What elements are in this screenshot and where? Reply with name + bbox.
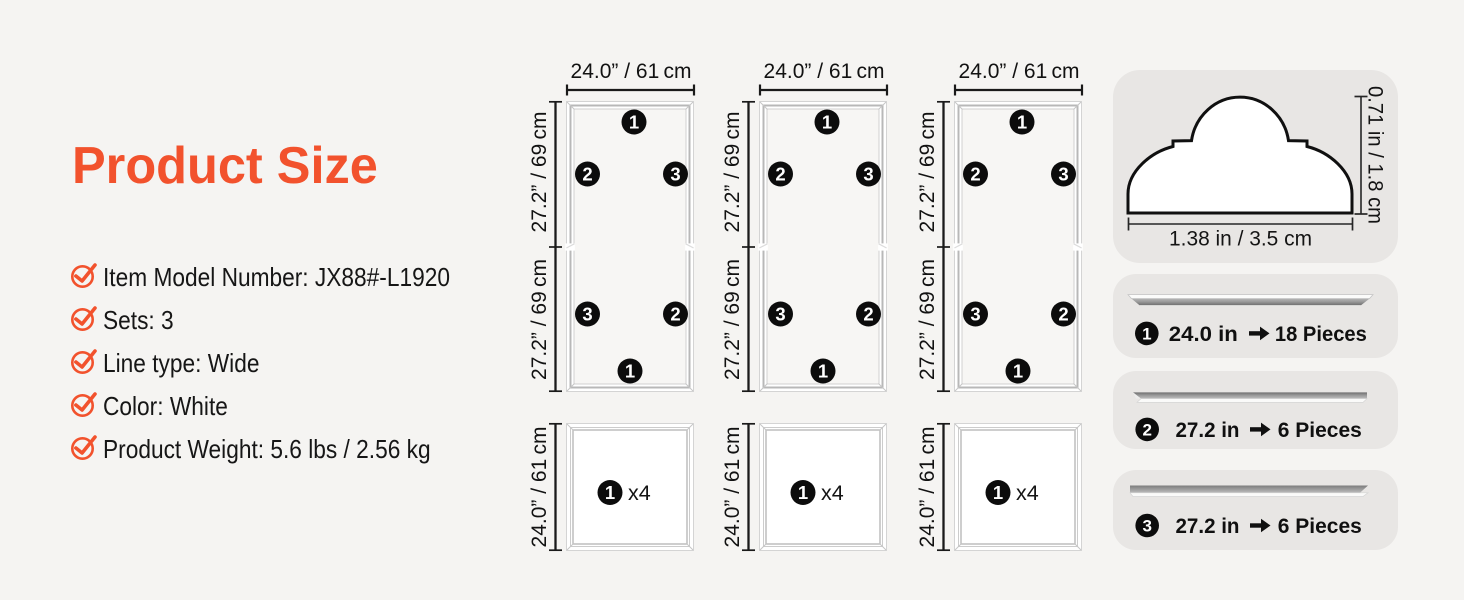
svg-text:24.0 in: 24.0 in [1169, 323, 1238, 346]
svg-text:24.0” / 61 cm: 24.0” / 61 cm [959, 60, 1080, 83]
svg-text:1: 1 [993, 482, 1003, 503]
svg-text:3: 3 [863, 164, 873, 185]
svg-text:1: 1 [798, 482, 808, 503]
svg-text:2: 2 [775, 164, 785, 185]
svg-text:27.2” / 69 cm: 27.2” / 69 cm [721, 112, 744, 233]
svg-text:1: 1 [629, 112, 639, 133]
svg-text:24.0” / 61 cm: 24.0” / 61 cm [916, 427, 939, 548]
svg-text:3: 3 [1142, 517, 1151, 536]
svg-text:24.0” / 61 cm: 24.0” / 61 cm [528, 427, 551, 548]
svg-text:x4: x4 [821, 481, 844, 505]
svg-text:2: 2 [1058, 304, 1068, 325]
svg-text:1: 1 [1013, 361, 1023, 382]
svg-text:1: 1 [818, 361, 828, 382]
svg-text:3: 3 [582, 304, 592, 325]
svg-text:3: 3 [775, 304, 785, 325]
svg-text:27.2” / 69 cm: 27.2” / 69 cm [528, 259, 551, 380]
svg-text:27.2 in: 27.2 in [1176, 419, 1240, 442]
svg-text:1: 1 [1142, 325, 1151, 344]
svg-text:27.2” / 69 cm: 27.2” / 69 cm [916, 259, 939, 380]
svg-text:6 Pieces: 6 Pieces [1278, 515, 1362, 538]
svg-text:27.2” / 69 cm: 27.2” / 69 cm [528, 112, 551, 233]
svg-text:1: 1 [822, 112, 832, 133]
svg-text:24.0” / 61 cm: 24.0” / 61 cm [571, 60, 692, 83]
svg-text:3: 3 [1058, 164, 1068, 185]
svg-text:1: 1 [1017, 112, 1027, 133]
svg-text:24.0” / 61 cm: 24.0” / 61 cm [721, 427, 744, 548]
svg-text:1.38 in / 3.5 cm: 1.38 in / 3.5 cm [1169, 227, 1312, 251]
svg-text:6 Pieces: 6 Pieces [1278, 419, 1362, 442]
svg-text:3: 3 [670, 164, 680, 185]
svg-text:24.0” / 61 cm: 24.0” / 61 cm [764, 60, 885, 83]
svg-text:0.71 in / 1.8 cm: 0.71 in / 1.8 cm [1364, 86, 1388, 224]
svg-text:2: 2 [863, 304, 873, 325]
svg-text:x4: x4 [628, 481, 651, 505]
svg-text:2: 2 [1142, 421, 1151, 440]
svg-text:1: 1 [625, 361, 635, 382]
svg-text:27.2” / 69 cm: 27.2” / 69 cm [916, 112, 939, 233]
svg-text:x4: x4 [1016, 481, 1039, 505]
svg-text:2: 2 [970, 164, 980, 185]
svg-text:1: 1 [605, 482, 615, 503]
svg-text:2: 2 [582, 164, 592, 185]
svg-text:27.2” / 69 cm: 27.2” / 69 cm [721, 259, 744, 380]
svg-text:3: 3 [970, 304, 980, 325]
svg-text:2: 2 [670, 304, 680, 325]
svg-text:27.2 in: 27.2 in [1176, 515, 1240, 538]
svg-text:18 Pieces: 18 Pieces [1275, 323, 1367, 346]
